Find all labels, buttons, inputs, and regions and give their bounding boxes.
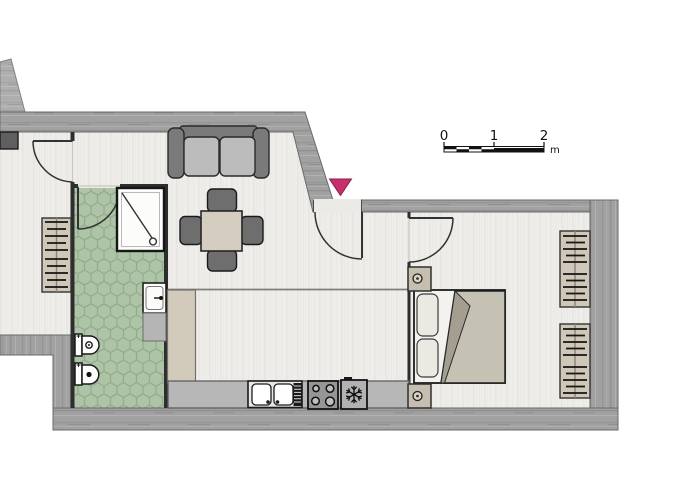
- wall-left-step: [0, 335, 72, 408]
- floor-plan-canvas: 0 1 2 m: [0, 0, 700, 500]
- freezer-unit: [341, 377, 367, 409]
- cutoff-counter: [0, 132, 18, 149]
- chair-right: [241, 217, 263, 245]
- chair-left: [180, 217, 202, 245]
- toilet: [75, 363, 99, 385]
- burner: [312, 397, 320, 405]
- radiator-bedroom-lower: [560, 324, 590, 398]
- basin-faucet: [159, 296, 163, 300]
- washbasin: [143, 283, 166, 313]
- drainer-hatch: [294, 383, 302, 406]
- cooktop: [308, 381, 338, 409]
- wall-pier-lower: [408, 384, 431, 408]
- burner: [326, 397, 335, 406]
- sink-drain-left: [266, 400, 270, 404]
- chair-top: [208, 189, 237, 212]
- shower: [117, 188, 164, 251]
- burner: [313, 385, 319, 391]
- pillow-top: [417, 294, 438, 336]
- wall-pier-upper: [408, 267, 431, 291]
- wall-right: [590, 200, 618, 430]
- entrance-opening: [313, 199, 362, 213]
- wall-bottom: [53, 408, 618, 430]
- scale-label-2: 2: [540, 128, 549, 144]
- tall-cabinet: [168, 290, 196, 383]
- pillow-bottom: [417, 339, 438, 377]
- radiator-side-room: [42, 218, 71, 292]
- floor-plan: 0 1 2 m: [0, 0, 700, 500]
- shower-drain: [150, 238, 157, 245]
- entrance-triangle-icon: [330, 179, 352, 196]
- scale-bar: 0 1 2 m: [440, 128, 560, 156]
- sofa: [168, 126, 269, 178]
- sink-drain-right: [276, 400, 280, 404]
- dining-table: [201, 211, 242, 251]
- scale-label-0: 0: [440, 128, 449, 144]
- scale-label-1: 1: [490, 128, 499, 144]
- scale-unit: m: [550, 145, 560, 156]
- kitchen: [168, 377, 409, 409]
- wall-stub-top-left: [0, 59, 25, 112]
- radiator-bedroom-upper: [560, 231, 590, 307]
- vanity-cabinet: [143, 313, 166, 341]
- sink-unit: [248, 381, 302, 408]
- double-bed: [414, 290, 505, 383]
- bidet: [75, 334, 99, 356]
- burner: [326, 385, 334, 393]
- chair-bottom: [208, 250, 237, 271]
